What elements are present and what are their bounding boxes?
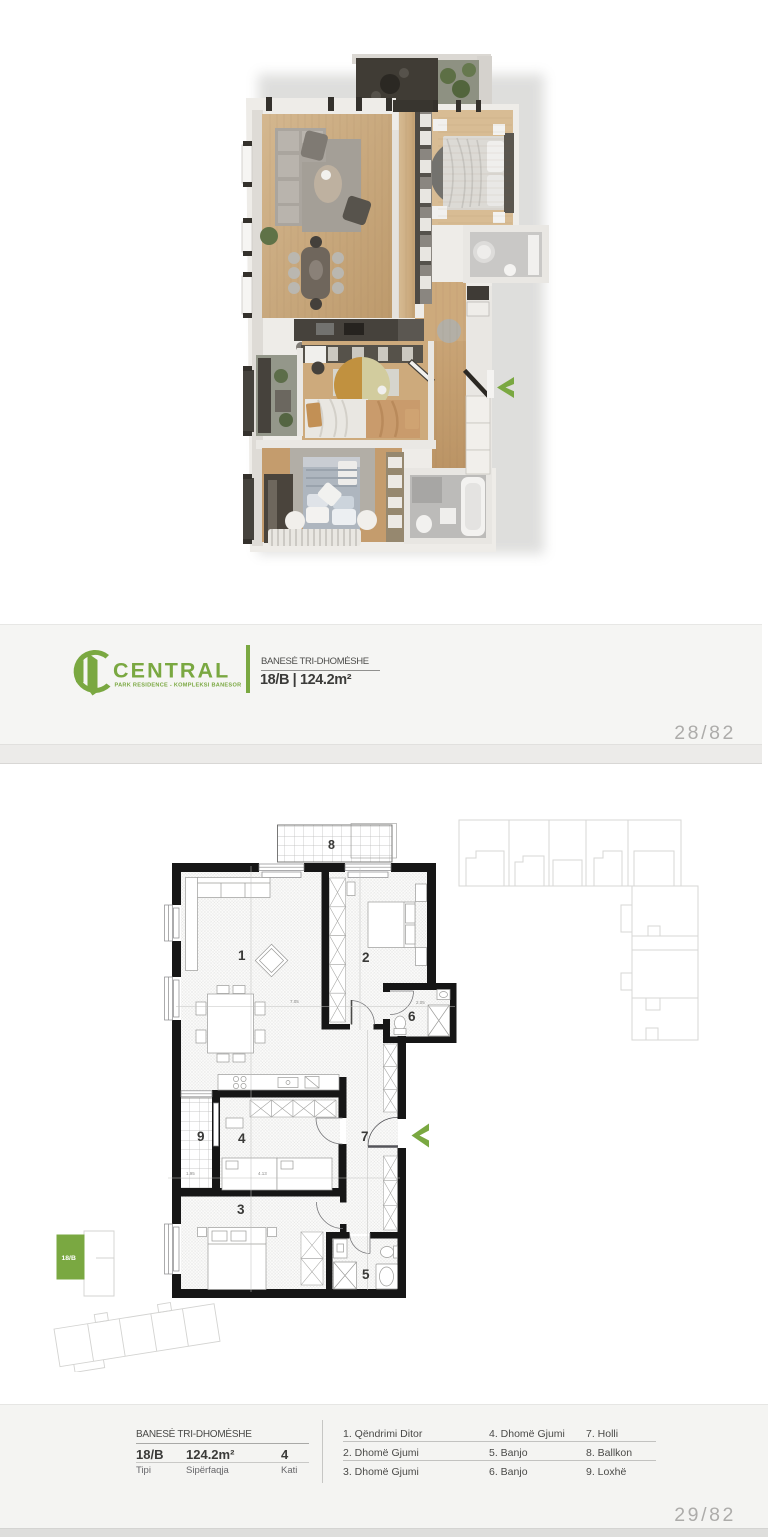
svg-text:6: 6 [408, 1009, 416, 1024]
svg-text:18/B: 18/B [62, 1255, 76, 1262]
svg-text:2.05: 2.05 [416, 1000, 425, 1005]
svg-text:3: 3 [237, 1202, 245, 1217]
svg-text:7.05: 7.05 [290, 999, 299, 1004]
svg-text:4: 4 [238, 1131, 246, 1146]
svg-text:8: 8 [328, 838, 335, 852]
svg-text:PARK RESIDENCE - KOMPLEKSI BAN: PARK RESIDENCE - KOMPLEKSI BANESOR [115, 683, 242, 689]
svg-text:1: 1 [238, 948, 246, 963]
svg-text:9: 9 [197, 1129, 205, 1144]
svg-text:5: 5 [362, 1267, 370, 1282]
svg-text:2: 2 [362, 950, 370, 965]
svg-text:7: 7 [361, 1129, 369, 1144]
svg-text:4.13: 4.13 [258, 1171, 267, 1176]
svg-text:CENTRAL: CENTRAL [113, 659, 230, 683]
svg-text:1.95: 1.95 [186, 1171, 195, 1176]
